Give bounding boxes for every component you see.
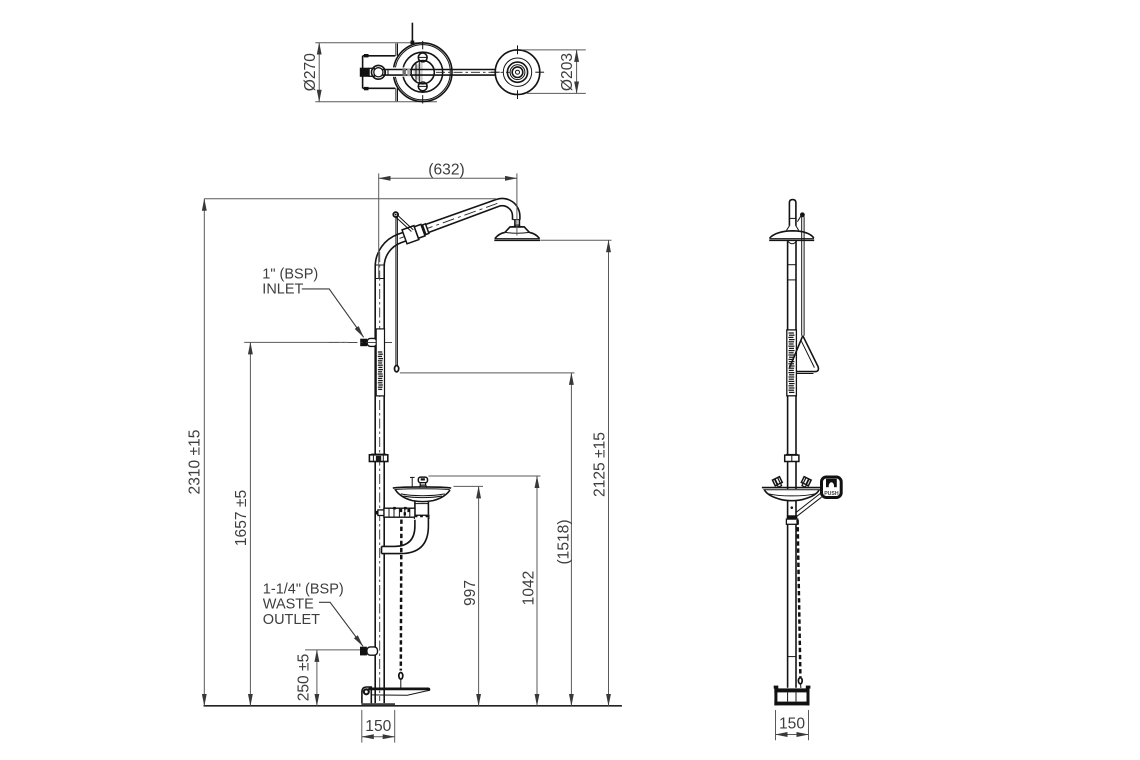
svg-text:150: 150 bbox=[365, 718, 391, 735]
svg-text:1-1/4" (BSP): 1-1/4" (BSP) bbox=[263, 581, 344, 597]
svg-text:2310 ±15: 2310 ±15 bbox=[187, 429, 204, 494]
svg-text:Ø203: Ø203 bbox=[559, 53, 576, 91]
svg-text:250 ±5: 250 ±5 bbox=[296, 653, 313, 701]
svg-text:(632): (632) bbox=[428, 161, 464, 178]
svg-text:2125 ±15: 2125 ±15 bbox=[592, 432, 609, 497]
svg-text:Ø270: Ø270 bbox=[302, 53, 319, 91]
svg-text:PUSH: PUSH bbox=[824, 491, 839, 497]
svg-text:1657 ±5: 1657 ±5 bbox=[233, 490, 250, 547]
svg-text:997: 997 bbox=[462, 580, 479, 606]
svg-text:INLET: INLET bbox=[262, 282, 303, 298]
svg-text:(1518): (1518) bbox=[555, 519, 572, 564]
svg-text:1042: 1042 bbox=[521, 571, 538, 606]
svg-text:WASTE: WASTE bbox=[263, 597, 314, 613]
svg-text:1" (BSP): 1" (BSP) bbox=[262, 266, 318, 282]
svg-text:150: 150 bbox=[779, 716, 805, 733]
svg-text:OUTLET: OUTLET bbox=[263, 612, 320, 628]
